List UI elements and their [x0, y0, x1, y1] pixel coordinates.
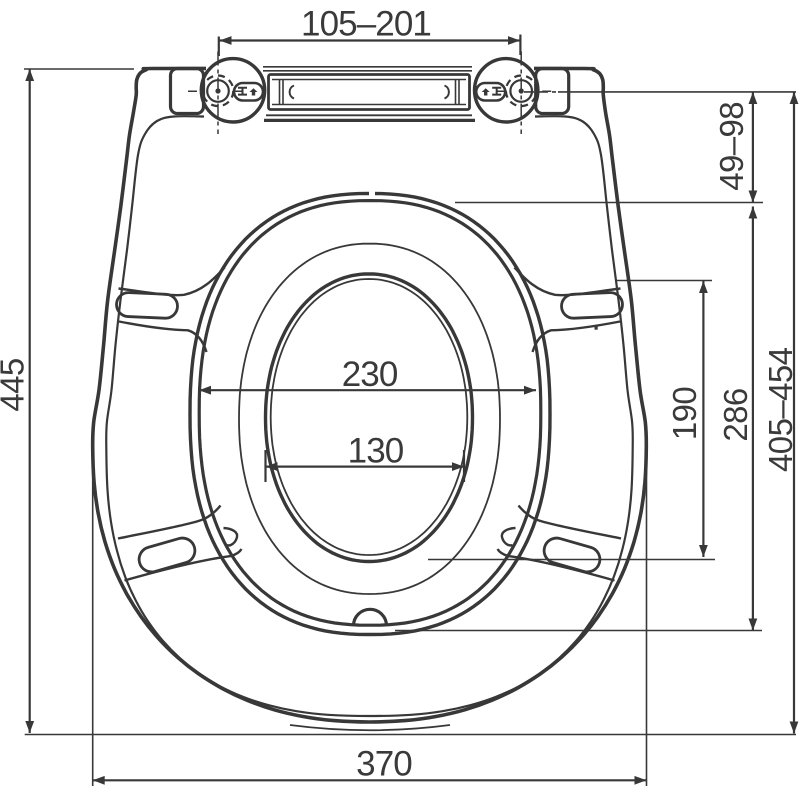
- svg-text:49–98: 49–98: [713, 102, 750, 191]
- svg-text:130: 130: [348, 432, 404, 471]
- svg-text:445: 445: [0, 358, 31, 411]
- svg-text:190: 190: [666, 387, 703, 441]
- svg-text:405–454: 405–454: [762, 347, 799, 472]
- svg-text:370: 370: [356, 745, 412, 784]
- svg-text:230: 230: [342, 355, 398, 394]
- svg-text:105–201: 105–201: [301, 5, 431, 44]
- svg-text:286: 286: [717, 388, 754, 441]
